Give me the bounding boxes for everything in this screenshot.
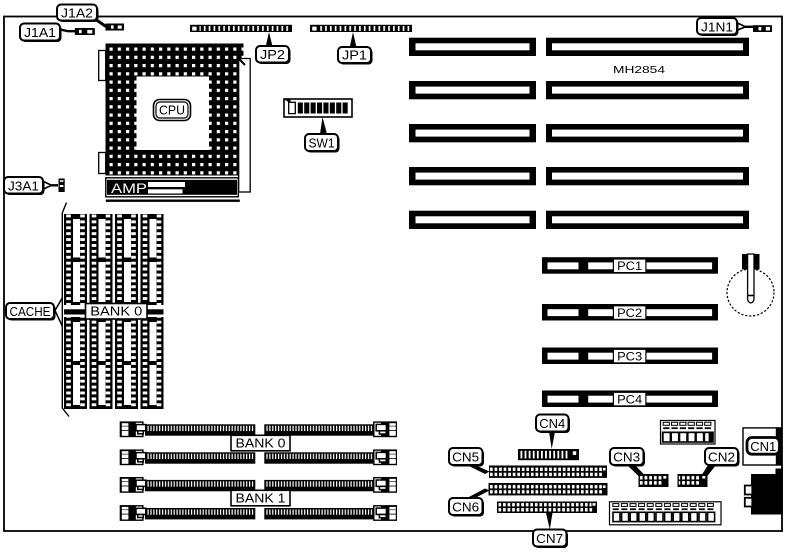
- svg-text:AMP: AMP: [111, 181, 147, 196]
- svg-text:BANK 0: BANK 0: [236, 437, 286, 451]
- svg-text:MH2854: MH2854: [613, 64, 665, 76]
- svg-text:CN5: CN5: [452, 450, 479, 465]
- svg-text:J1A1: J1A1: [24, 25, 56, 40]
- svg-text:J3A1: J3A1: [8, 179, 39, 194]
- svg-text:J1A2: J1A2: [61, 6, 93, 21]
- svg-text:SW1: SW1: [309, 136, 335, 151]
- svg-text:CN4: CN4: [539, 416, 565, 431]
- svg-text:CACHE: CACHE: [10, 304, 51, 319]
- svg-text:J1N1: J1N1: [701, 20, 733, 35]
- svg-text:CPU: CPU: [159, 104, 185, 118]
- svg-text:JP1: JP1: [342, 48, 367, 63]
- svg-text:CN7: CN7: [536, 531, 563, 546]
- svg-text:PC4: PC4: [617, 394, 643, 406]
- svg-text:PC3: PC3: [617, 351, 642, 363]
- svg-text:PC2: PC2: [617, 308, 642, 320]
- svg-text:BANK 0: BANK 0: [90, 305, 142, 319]
- svg-text:CN2: CN2: [708, 450, 735, 465]
- svg-text:CN6: CN6: [452, 500, 479, 515]
- svg-text:CN1: CN1: [750, 439, 776, 454]
- svg-text:CN3: CN3: [613, 450, 640, 465]
- svg-text:PC1: PC1: [617, 261, 642, 273]
- svg-text:BANK 1: BANK 1: [236, 492, 286, 506]
- svg-text:JP2: JP2: [260, 47, 285, 62]
